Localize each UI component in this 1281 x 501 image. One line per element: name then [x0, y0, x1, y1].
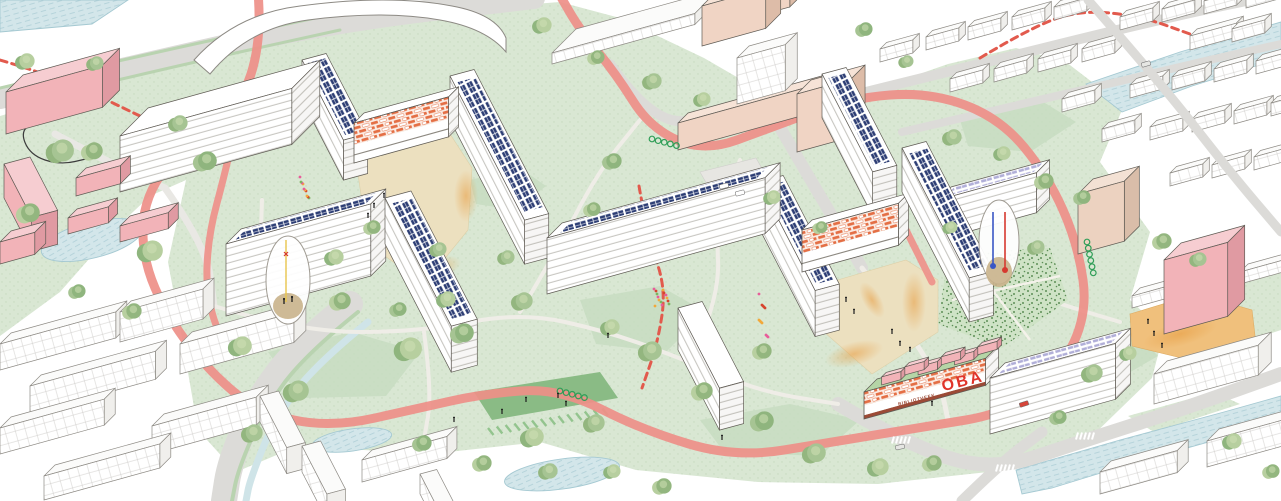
warm-glow [454, 170, 478, 222]
masterplan-illustration: OBA BIBLIOTHEEK [0, 0, 1281, 501]
warm-glow [902, 272, 926, 332]
people-section-callout [266, 236, 310, 324]
masterplan-canvas: OBA BIBLIOTHEEK [0, 0, 1281, 501]
